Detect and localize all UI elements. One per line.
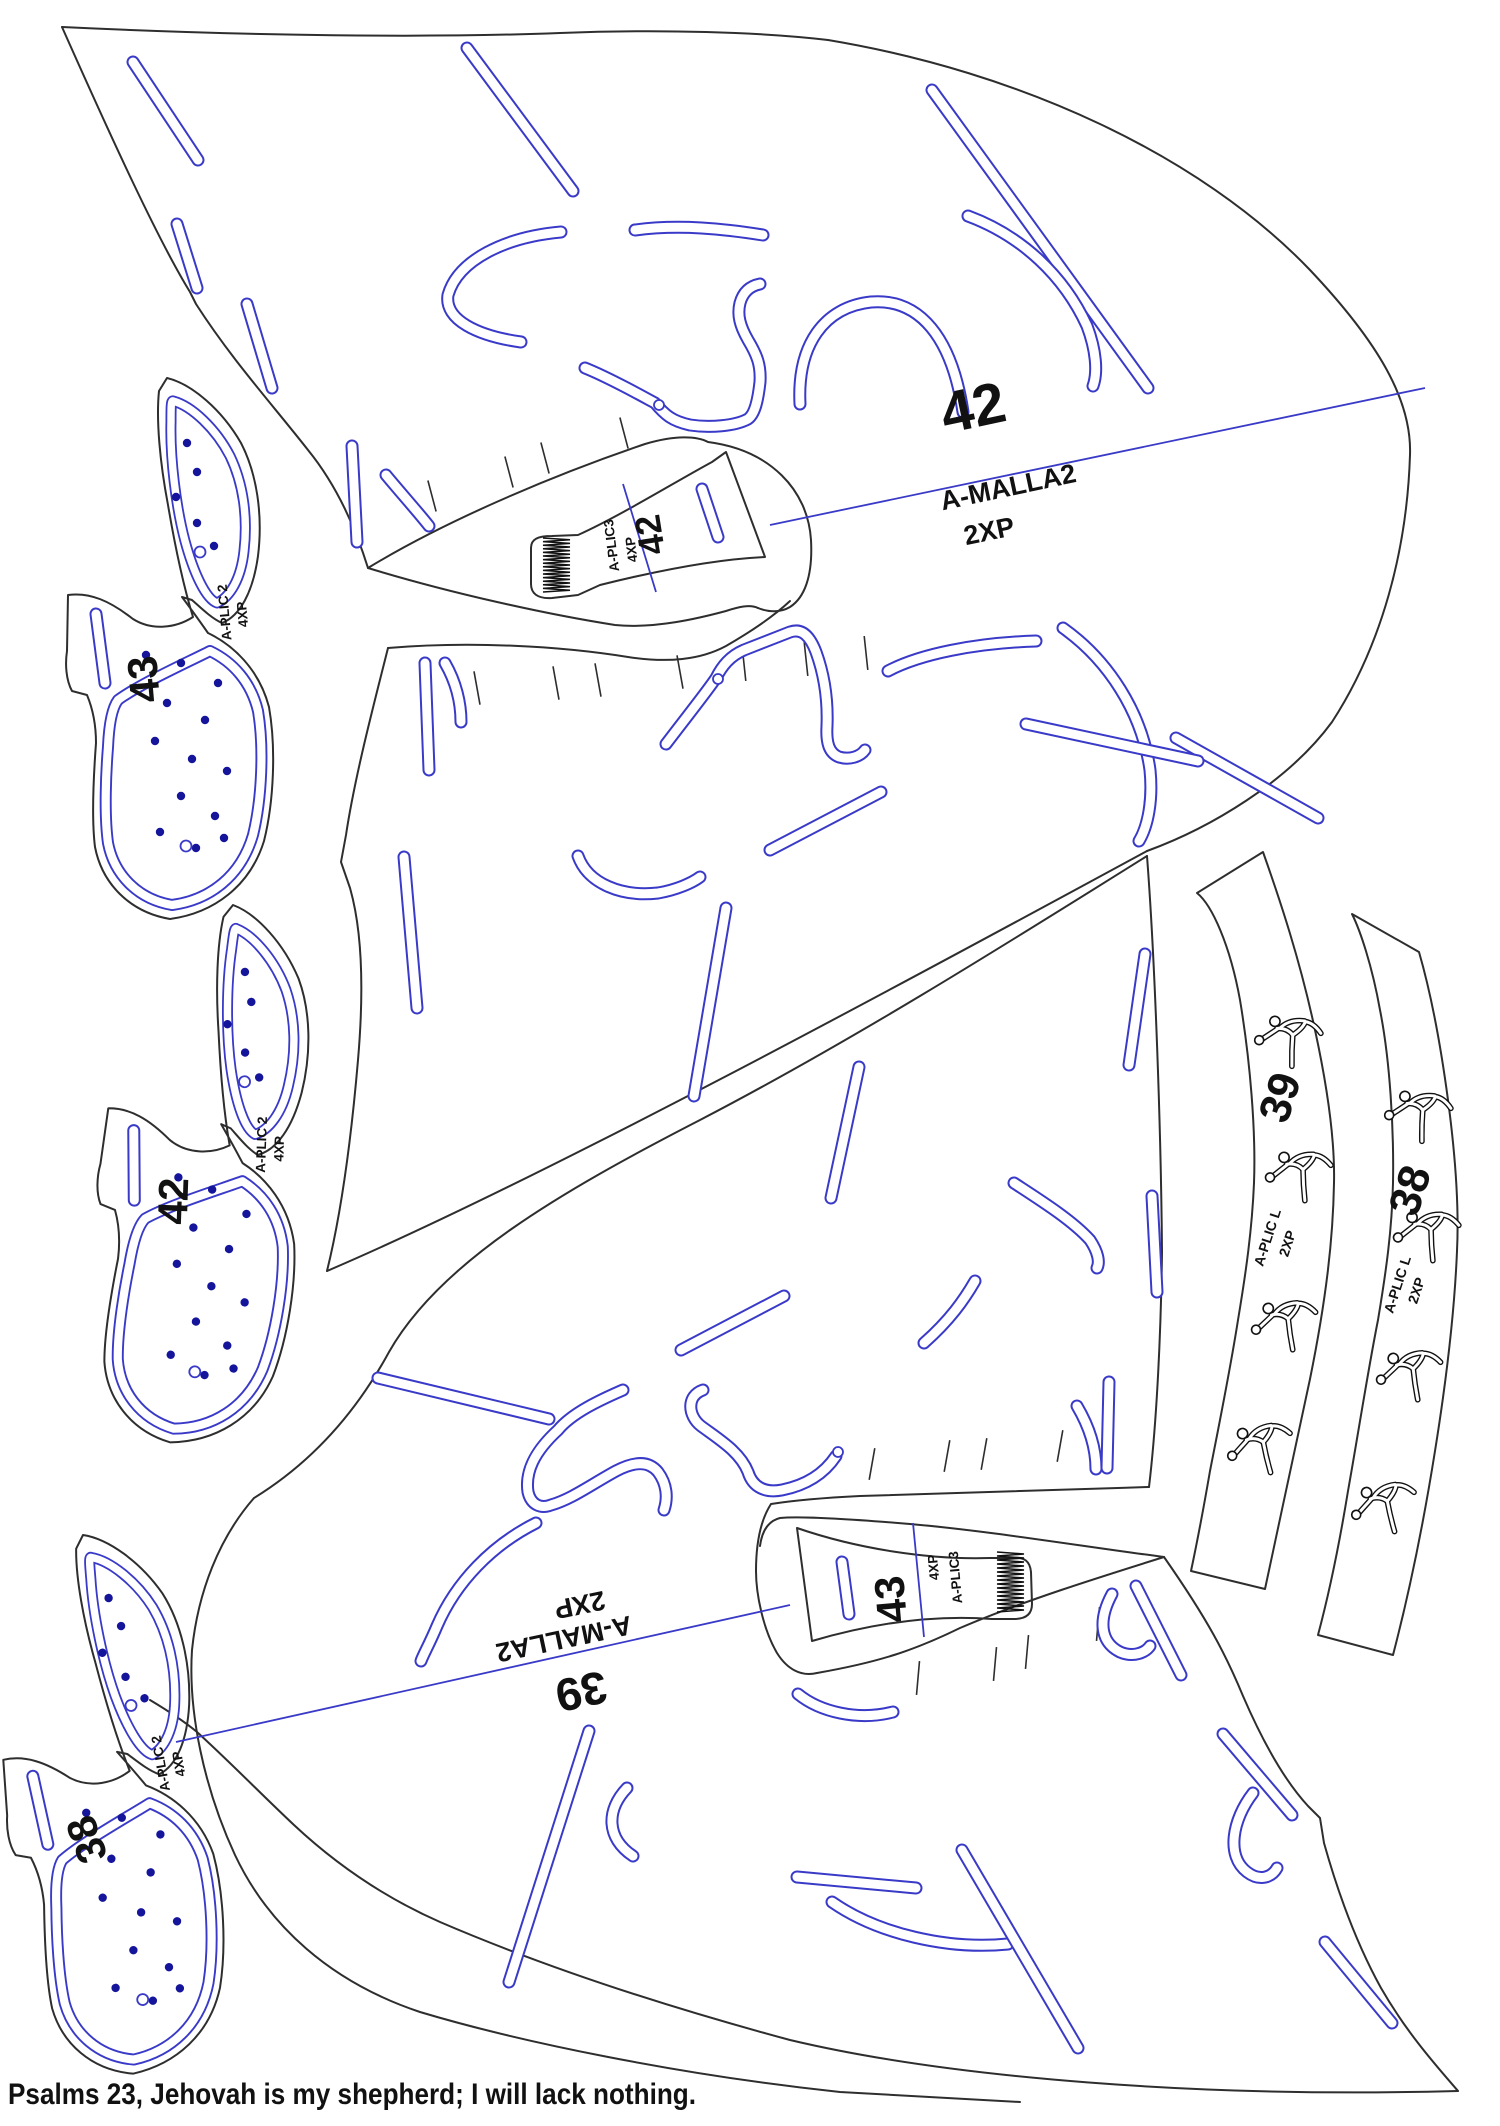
svg-text:42: 42 [935, 369, 1012, 446]
svg-text:42: 42 [626, 512, 673, 558]
svg-text:43: 43 [118, 654, 169, 705]
svg-text:4XP: 4XP [925, 1554, 942, 1581]
svg-text:43: 43 [865, 1574, 916, 1625]
svg-text:A-PLIC 2: A-PLIC 2 [253, 1116, 270, 1173]
svg-text:39: 39 [551, 1661, 612, 1723]
svg-text:42: 42 [149, 1177, 198, 1225]
svg-text:Psalms 23, Jehovah is my sheph: Psalms 23, Jehovah is my shepherd; I wil… [8, 2078, 696, 2111]
svg-text:4XP: 4XP [234, 601, 251, 628]
svg-text:4XP: 4XP [271, 1136, 287, 1162]
